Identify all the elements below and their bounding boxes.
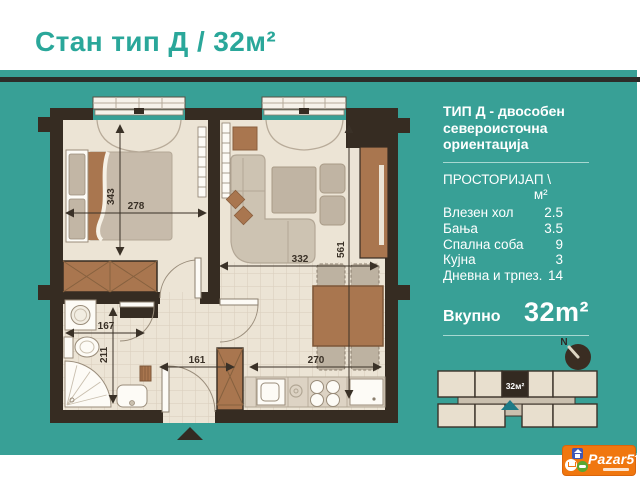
table-row: Бања 3.5: [443, 221, 563, 237]
highlighted-unit-label: 32м²: [506, 381, 525, 391]
apartment-type-heading: ТИП Д - двособен североисточна ориентаци…: [443, 103, 589, 153]
room-name: Кујна: [443, 252, 476, 268]
radiator: [222, 123, 230, 198]
cart-icon: [565, 459, 577, 471]
armchair: [320, 164, 345, 193]
separator-line-top: [443, 162, 589, 163]
dining-table: [313, 286, 383, 346]
dim-bath-width: 167: [98, 321, 115, 332]
column-room: ПРОСТОРИЈА: [443, 172, 534, 204]
toilet: [64, 337, 99, 358]
total-label: Вкупно: [443, 308, 501, 326]
heading-line-2: североисточна: [443, 120, 589, 137]
washing-machine: [65, 300, 96, 330]
table-row: Влезен хол 2.5: [443, 205, 563, 221]
room-area: 3: [555, 252, 563, 268]
entrance-arrow: [177, 427, 203, 440]
brand-name: Pazar5: [588, 451, 634, 467]
table-row: Спална соба 9: [443, 237, 563, 253]
total-value: 32m²: [524, 297, 589, 328]
tv-cabinet: [360, 147, 388, 258]
room-name: Влезен хол: [443, 205, 514, 221]
total-row: Вкупно 32m²: [443, 297, 589, 328]
installation-shaft: [217, 348, 243, 410]
room-name: Дневна и трпез.: [443, 268, 542, 284]
table-row: Дневна и трпез. 14: [443, 268, 563, 284]
building-section: 32м²: [438, 371, 597, 427]
dim-bedroom-height: 343: [106, 188, 117, 205]
room-area: 3.5: [544, 221, 563, 237]
room-area: 9: [555, 237, 563, 253]
wardrobe: [63, 261, 157, 292]
dim-bath-height: 211: [99, 346, 110, 363]
pazar5-logo[interactable]: Pazar5.mk: [562, 445, 636, 476]
car-icon: [577, 461, 588, 472]
side-table: [233, 127, 257, 150]
room-area: 2.5: [544, 205, 563, 221]
heading-line-3: ориентација: [443, 136, 589, 153]
armchair: [320, 196, 345, 225]
info-panel: ТИП Д - двособен североисточна ориентаци…: [443, 103, 589, 336]
heading-line-1: ТИП Д - двособен: [443, 103, 589, 120]
fridge: [350, 379, 383, 405]
kitchen-counter: [245, 377, 385, 407]
dim-hall-width: 161: [189, 355, 206, 366]
brand-tld: .mk: [634, 452, 640, 459]
table-header-row: ПРОСТОРИЈА П \ м²: [443, 172, 563, 204]
dim-living-width: 332: [292, 254, 309, 265]
logo-tagline-bar: [603, 468, 629, 471]
column-area: П \ м²: [534, 172, 563, 204]
house-icon: [572, 448, 583, 459]
room-name: Спална соба: [443, 237, 524, 253]
table-row: Кујна 3: [443, 252, 563, 268]
north-compass: N: [560, 337, 591, 370]
dim-bedroom-width: 278: [128, 201, 145, 212]
dim-living-height: 561: [336, 241, 347, 258]
bed: [66, 150, 172, 242]
north-label: N: [560, 337, 567, 348]
room-name: Бања: [443, 221, 478, 237]
room-area: 14: [548, 268, 563, 284]
hall-radiator: [140, 366, 151, 381]
separator-line-bottom: [443, 335, 589, 336]
logo-brand-text: Pazar5.mk: [588, 451, 640, 467]
bathroom-sink: [117, 385, 147, 407]
rooms-table: ПРОСТОРИЈА П \ м² Влезен хол 2.5 Бања 3.…: [443, 172, 589, 285]
coffee-table: [272, 167, 316, 213]
radiator: [198, 127, 206, 197]
dim-kitchen-width: 270: [308, 355, 325, 366]
